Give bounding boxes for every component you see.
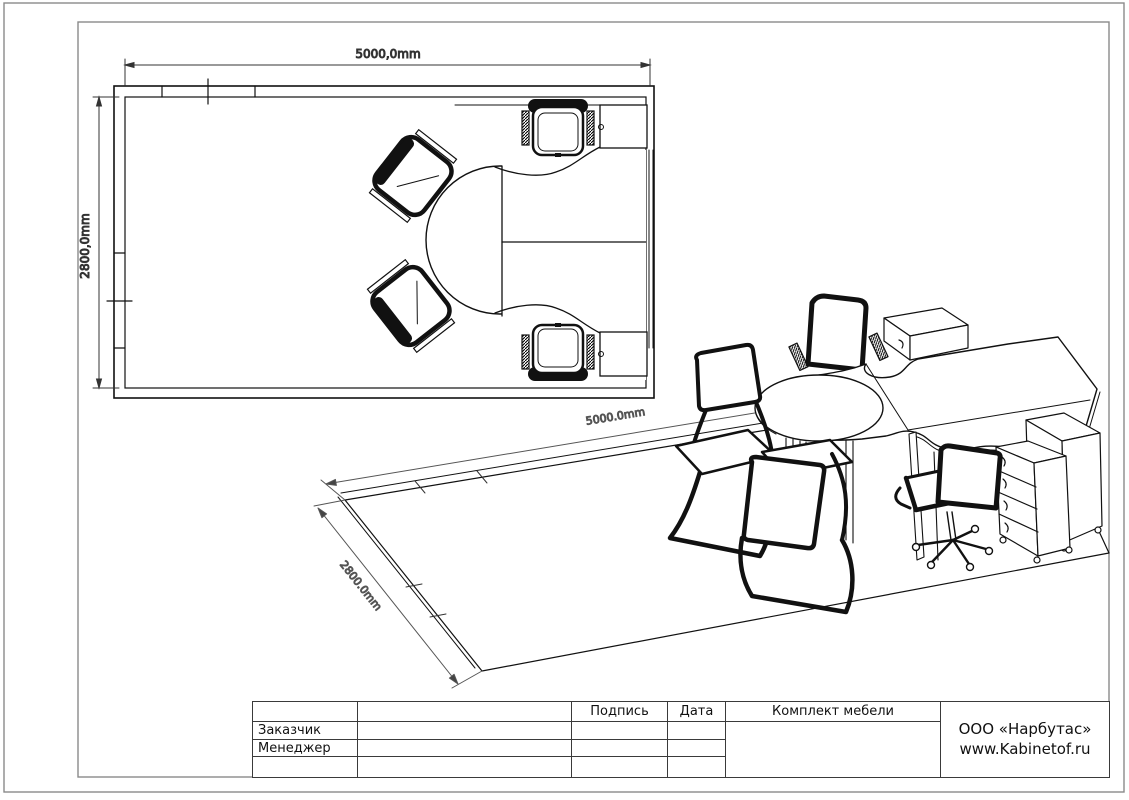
tb-manager-date (668, 740, 726, 757)
tb-date-header: Дата (668, 702, 726, 722)
tb-manager-label: Менеджер (253, 740, 358, 757)
tb-customer-date (668, 722, 726, 740)
tb-customer-signature (572, 722, 668, 740)
tb-empty-header-1 (253, 702, 358, 722)
tb-footer-2 (358, 757, 572, 777)
title-block: Подпись Дата Комплект мебели ООО «Нарбут… (252, 701, 1110, 778)
iso-depth-label: 2800.0mm (337, 558, 384, 613)
plan-office-chair-bottom (522, 323, 594, 381)
plan-view: 5000,0mm 2800,0mm (78, 47, 654, 398)
tb-customer-label: Заказчик (253, 722, 358, 740)
cad-drawing: 5000,0mm 2800,0mm (0, 0, 1129, 800)
tb-manager-value (358, 740, 572, 757)
plan-pedestal-bottom (600, 332, 647, 376)
iso-width-label: 5000.0mm (585, 405, 646, 428)
iso-view: 5000.0mm 2800.0mm (314, 296, 1109, 688)
tb-footer-4 (668, 757, 726, 777)
company-name: ООО «Нарбутас» (959, 720, 1092, 740)
plan-width-label: 5000,0mm (355, 47, 420, 61)
plan-office-chair-top (522, 99, 594, 157)
plan-pedestal-top (600, 105, 647, 148)
drawing-sheet: 5000,0mm 2800,0mm (0, 0, 1129, 800)
iso-executive-chair (789, 296, 888, 370)
plan-height-dimension: 2800,0mm (78, 97, 119, 388)
tb-project-title: Комплект мебели (726, 702, 941, 722)
plan-height-label: 2800,0mm (78, 213, 92, 278)
plan-width-dimension: 5000,0mm (125, 47, 650, 85)
tb-footer-3 (572, 757, 668, 777)
tb-customer-value (358, 722, 572, 740)
company-website: www.Kabinetof.ru (959, 740, 1090, 760)
tb-footer-1 (253, 757, 358, 777)
tb-signature-header: Подпись (572, 702, 668, 722)
tb-manager-signature (572, 740, 668, 757)
tb-empty-header-2 (358, 702, 572, 722)
iso-round-table (755, 375, 883, 441)
tb-project-body (726, 722, 941, 777)
tb-company: ООО «Нарбутас» www.Kabinetof.ru (941, 702, 1109, 777)
